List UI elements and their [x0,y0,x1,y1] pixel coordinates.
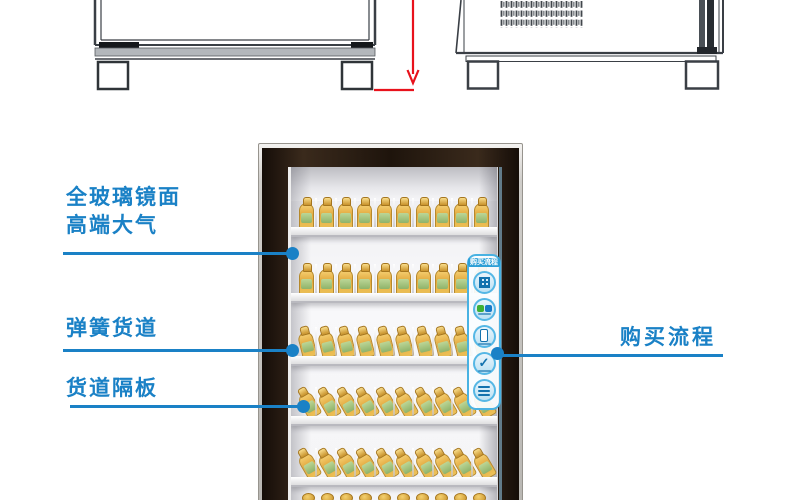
lane-slot [316,195,335,229]
technical-drawings [0,0,790,100]
lane-slot [297,324,316,358]
lane-slot [394,324,413,358]
lane-slot [336,261,355,295]
beverage-bottle [376,197,393,229]
bottle-cap [397,493,410,500]
bottle-cap [321,493,334,500]
beverage-bottle [376,263,393,295]
purchase-flow-panel-title: 购买流程 [468,258,500,267]
lane-slot [316,384,335,418]
lane-slot [433,195,452,229]
callout-glass-mirror-line2: 高端大气 [66,212,181,240]
cabinet-back-base-drawing [456,0,723,89]
lane-slot [375,195,394,229]
product-showcase-page: 购买流程 ✓ 全玻璃镜面 高端大气 弹簧货道 货道隔板 购买流程 [0,0,790,500]
lane-slot [316,445,335,479]
lane-slot [413,384,432,418]
shelf-row [295,445,493,487]
lane-slot [336,445,355,479]
dimension-arrow [374,0,419,90]
lane-slot [375,261,394,295]
callout-lane-divider-dot [297,400,310,413]
beverage-bottle [434,263,451,295]
bottle-cap [416,493,429,500]
beverage-bottle [298,263,315,295]
callout-lane-divider-label: 货道隔板 [66,375,158,403]
hinge-bracket [697,47,717,54]
bottle-cap [340,493,353,500]
beverage-bottle [298,197,315,229]
bottle-cap [378,493,391,500]
lane-slot [297,445,316,479]
lane-slot [413,195,432,229]
bottle-cap [473,493,486,500]
lane-slot [413,261,432,295]
shelf-row [295,324,493,366]
lane-slot [472,195,491,229]
lane-slot [413,445,432,479]
callout-spring-lane-line [63,349,293,352]
callout-glass-mirror-line [63,252,292,255]
lane-slot [394,384,413,418]
beverage-bottle [473,197,490,229]
shelf-board [291,477,497,487]
callout-glass-mirror-dot [286,247,299,260]
beverage-bottle [337,263,354,295]
door-seal-left [99,42,139,48]
hinge-bar [699,0,705,50]
beverage-bottle [415,263,432,295]
callout-spring-lane-dot [286,344,299,357]
lane-slot [472,445,491,479]
door-seal-right [351,42,373,48]
bottle-cap [435,493,448,500]
beverage-bottle [318,263,335,295]
lane-slot [336,195,355,229]
beverage-bottle [356,263,373,295]
lane-slot [297,261,316,295]
purchase-flow-panel: 购买流程 ✓ [467,254,501,410]
phone-icon [473,325,496,348]
lane-slot [452,195,471,229]
beverage-bottle [453,197,470,229]
hinge-bar-dark [707,0,714,50]
pickup-note-icon [473,379,496,402]
beverage-bottle [395,197,412,229]
bottle-cap [302,493,315,500]
wechat-alipay-pay-icons [473,298,496,321]
cabinet-front-base-drawing [95,0,375,45]
beverage-bottle [356,197,373,229]
callout-spring-lane-label: 弹簧货道 [66,315,158,343]
lane-slot [394,445,413,479]
lane-slot [433,384,452,418]
callout-lane-divider-line [70,405,303,408]
lane-slot [297,195,316,229]
bottom-bottle-caps-row [299,493,489,500]
lane-slot [375,445,394,479]
callout-purchase-flow-label: 购买流程 [620,324,716,352]
lane-slot [394,195,413,229]
lane-slot [355,195,374,229]
bottle-cap [454,493,467,500]
beverage-bottle [337,197,354,229]
bottle-cap [359,493,372,500]
lane-slot [355,261,374,295]
beverage-bottle [415,197,432,229]
lane-slot [336,384,355,418]
lane-slot [433,261,452,295]
lane-slot [316,261,335,295]
callout-glass-mirror-label: 全玻璃镜面 高端大气 [66,184,181,240]
beverage-bottle [434,197,451,229]
lane-slot [355,445,374,479]
shelf-row [295,261,493,303]
foot-right [342,62,372,89]
callout-purchase-flow-line [497,354,723,357]
base-plinth [95,48,375,56]
shelf-board [291,227,497,237]
lane-slot [355,384,374,418]
purchase-flow-steps: ✓ [473,267,496,402]
spec-text-block [500,1,583,28]
shelf-row [295,195,493,237]
lane-slot [452,445,471,479]
lane-slot [375,384,394,418]
qr-code-icon [473,271,496,294]
shelf-row [295,384,493,426]
lane-slot [433,445,452,479]
beverage-bottle [395,263,412,295]
beverage-bottle [318,197,335,229]
callout-purchase-flow-dot [491,347,504,360]
lane-slot [394,261,413,295]
foot-left [98,62,128,89]
shelf-board [291,416,497,426]
callout-glass-mirror-line1: 全玻璃镜面 [66,184,181,212]
